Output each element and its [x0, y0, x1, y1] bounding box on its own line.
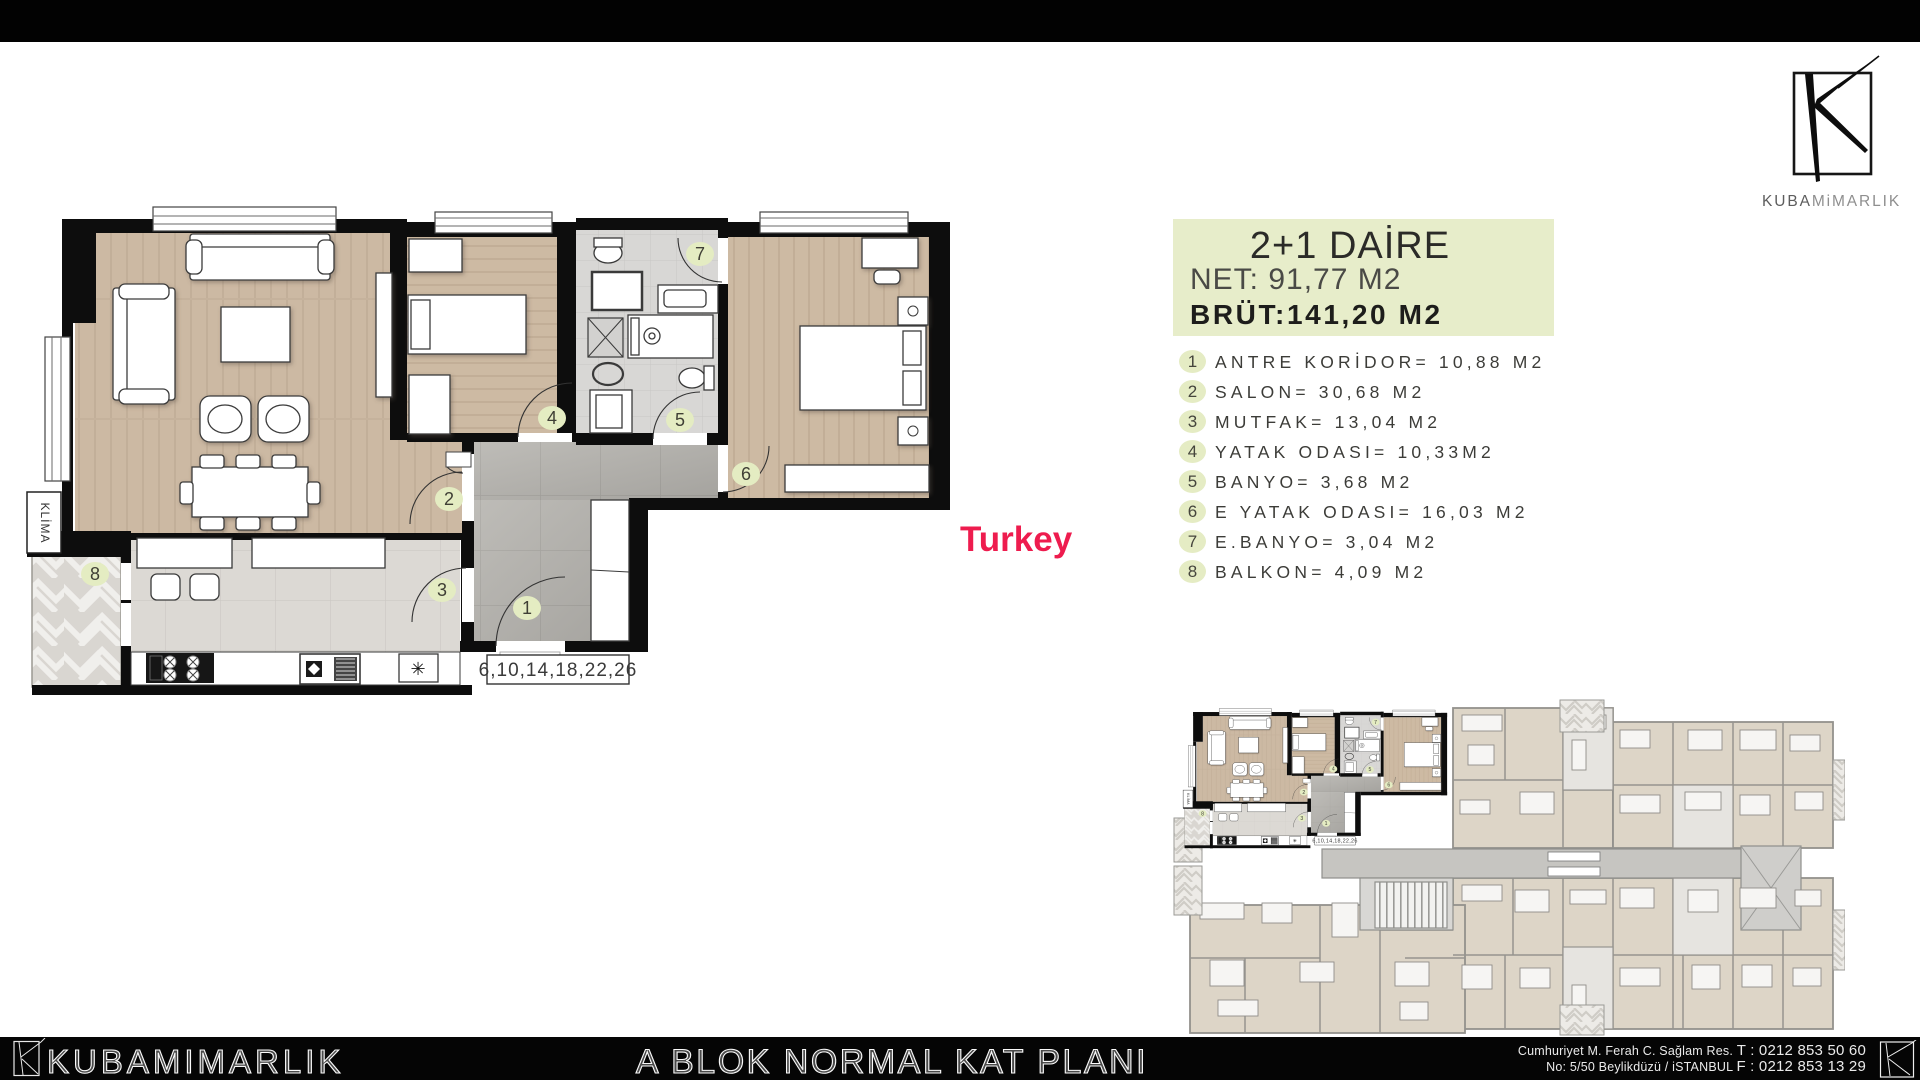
svg-text:KLİMA: KLİMA	[38, 502, 52, 543]
svg-text:1: 1	[522, 598, 532, 618]
svg-text:3: 3	[437, 580, 447, 600]
svg-text:7: 7	[695, 244, 705, 264]
svg-text:4: 4	[547, 408, 557, 428]
svg-text:2: 2	[444, 489, 454, 509]
svg-text:5: 5	[675, 410, 685, 430]
svg-text:8: 8	[90, 564, 100, 584]
svg-text:6,10,14,18,22,26: 6,10,14,18,22,26	[479, 660, 638, 681]
svg-text:✳: ✳	[410, 659, 425, 679]
svg-text:6: 6	[741, 464, 751, 484]
